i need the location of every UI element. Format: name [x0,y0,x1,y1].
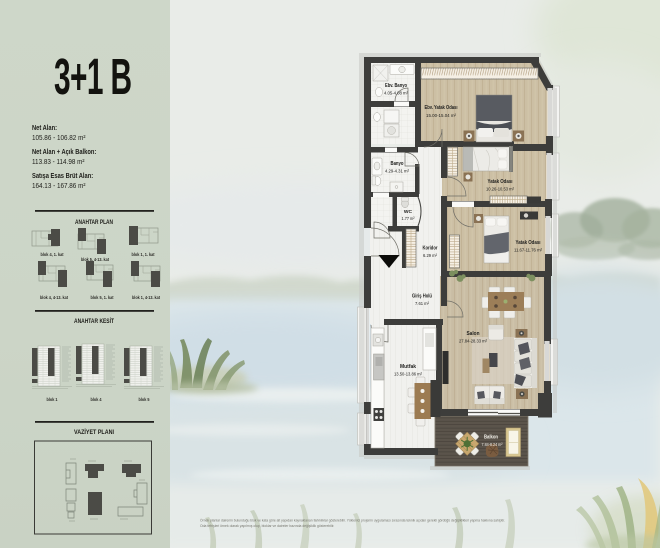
svg-text:Koridor: Koridor [423,246,438,252]
svg-text:WC: WC [404,209,413,215]
svg-text:Mutfak: Mutfak [400,364,416,370]
svg-text:Ebv. Yatak Odası: Ebv. Yatak Odası [425,105,458,111]
svg-text:Ebv. Banyo: Ebv. Banyo [385,83,407,89]
svg-text:6.29 m²: 6.29 m² [423,253,437,259]
svg-text:4.29-4.31 m²: 4.29-4.31 m² [385,169,409,175]
svg-text:7.84-8.24 m²: 7.84-8.24 m² [482,442,503,447]
svg-text:27.84-28.33 m²: 27.84-28.33 m² [459,339,487,345]
svg-text:Yatak Odası: Yatak Odası [488,179,513,185]
svg-text:7.61 m²: 7.61 m² [415,301,429,307]
svg-text:Balkon: Balkon [484,435,498,441]
svg-text:15.00-15.04 m²: 15.00-15.04 m² [426,113,456,119]
svg-text:Yatak Odası: Yatak Odası [516,240,541,246]
svg-text:10.26-10.53 m²: 10.26-10.53 m² [486,187,514,193]
svg-text:13.50-13.86 m²: 13.50-13.86 m² [394,372,422,378]
svg-text:1.77 m²: 1.77 m² [402,216,415,221]
svg-text:Giriş Holü: Giriş Holü [412,294,432,300]
svg-text:Örnek planlar dairenin bulundu: Örnek planlar dairenin bulunduğu blok ve… [200,519,505,523]
svg-text:Salon: Salon [467,331,480,337]
svg-text:Banyo: Banyo [391,161,404,167]
svg-text:Oda tefrişleri örnek olarak ya: Oda tefrişleri örnek olarak yapılmış olu… [200,524,334,528]
svg-text:11.67-11.76 m²: 11.67-11.76 m² [514,248,542,254]
svg-text:4.05-4.08 m²: 4.05-4.08 m² [384,91,408,97]
